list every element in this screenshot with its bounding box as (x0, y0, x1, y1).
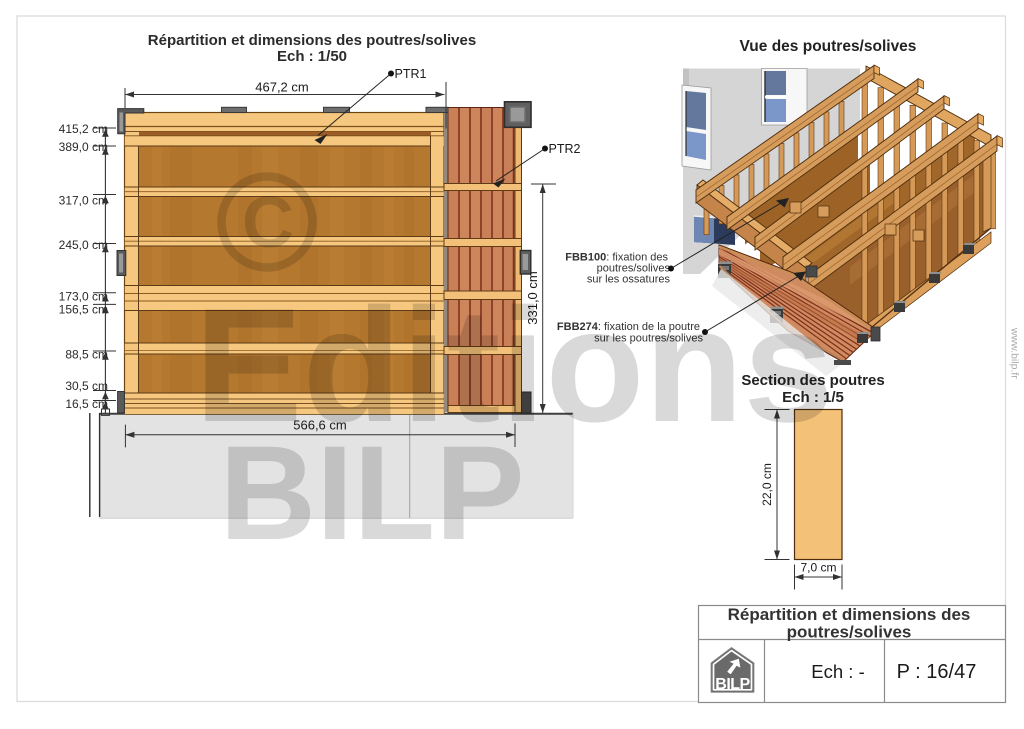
svg-text:Ech : -: Ech : - (811, 661, 864, 682)
svg-text:poutres/solives: poutres/solives (787, 623, 912, 642)
svg-text:PTR1: PTR1 (395, 67, 427, 81)
svg-text:22,0 cm: 22,0 cm (760, 463, 774, 506)
svg-text:Vue des poutres/solives: Vue des poutres/solives (740, 38, 917, 55)
svg-text:P : 16/47: P : 16/47 (897, 661, 977, 683)
svg-text:Répartition et dimensions des: Répartition et dimensions des poutres/so… (148, 32, 476, 49)
svg-text:BILP: BILP (715, 676, 750, 693)
svg-text:PTR2: PTR2 (549, 142, 581, 156)
svg-text:30,5 cm: 30,5 cm (65, 379, 108, 393)
svg-text:245,0 cm: 245,0 cm (59, 238, 108, 252)
svg-text:317,0 cm: 317,0 cm (59, 194, 108, 208)
svg-text:389,0 cm: 389,0 cm (59, 140, 108, 154)
svg-text:415,2 cm: 415,2 cm (59, 122, 108, 136)
svg-text:16,5 cm: 16,5 cm (65, 397, 108, 411)
svg-text:Ech : 1/50: Ech : 1/50 (277, 48, 347, 65)
svg-text:467,2 cm: 467,2 cm (255, 80, 308, 95)
svg-text:88,5 cm: 88,5 cm (65, 348, 108, 362)
svg-text:156,5 cm: 156,5 cm (59, 303, 108, 317)
svg-text:Répartition et dimensions des: Répartition et dimensions des (728, 605, 971, 624)
svg-text:7,0 cm: 7,0 cm (800, 561, 836, 575)
svg-text:173,0 cm: 173,0 cm (59, 290, 108, 304)
svg-text:C: C (242, 183, 294, 263)
svg-text:BILP: BILP (219, 419, 524, 568)
svg-text:www.bilp.fr: www.bilp.fr (1009, 327, 1021, 379)
